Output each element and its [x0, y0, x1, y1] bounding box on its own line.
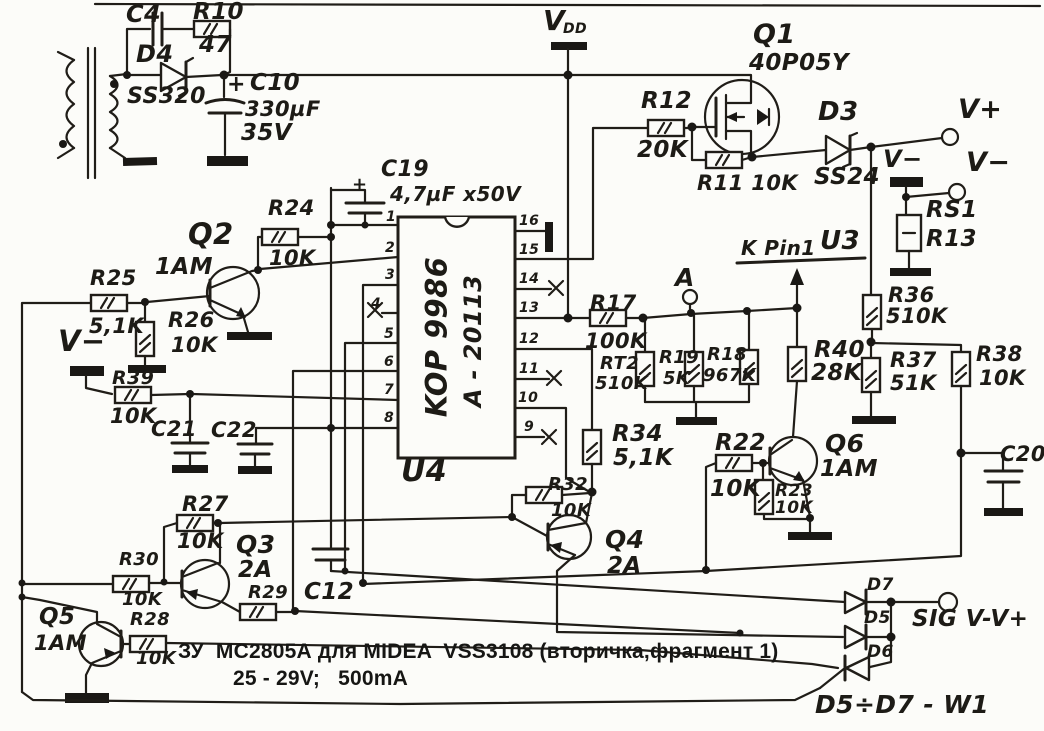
label-r19-value: 5K [663, 370, 690, 388]
pin-3: 3 [385, 268, 395, 282]
label-r27: R27 [182, 494, 229, 515]
label-r34-value: 5,1K [613, 447, 673, 470]
label-c4: C4 [126, 2, 161, 26]
label-r37-value: 51K [890, 373, 937, 394]
label-vminus-flag: V− [883, 147, 922, 171]
label-d4-part: SS320 [127, 86, 206, 108]
label-r22-value: 10K [710, 478, 761, 501]
label-r29: R29 [248, 584, 288, 602]
label-q3-part: 2A [238, 559, 273, 582]
label-d4: D4 [136, 42, 173, 66]
pin-13: 13 [519, 301, 539, 315]
label-c10-value: 330µF [245, 99, 321, 120]
label-vminus-left: V− [58, 327, 106, 356]
label-q4-part: 2A [607, 555, 642, 578]
ic-part: KOP 9986 [423, 257, 452, 418]
pin-11: 11 [519, 362, 539, 376]
label-r26: R26 [168, 310, 215, 331]
label-q2: Q2 [188, 220, 234, 249]
label-r38-value: 10K [979, 368, 1026, 389]
labels-layer: C4R1047D4SS320+C10330µF35VVDDQ140P05YR12… [0, 0, 1044, 731]
label-kpin1: K Pin1 [741, 238, 816, 258]
label-u4: U4 [401, 457, 447, 487]
pin-8: 8 [384, 411, 394, 425]
pin-2: 2 [385, 241, 395, 255]
caption-line1: ЗУ МС2805А для MIDEA VSS3108 (вторичка,ф… [178, 641, 778, 662]
label-q4: Q4 [605, 527, 644, 552]
label-q5-part: 1AM [34, 633, 87, 654]
label-c19-plus: + [352, 176, 367, 194]
label-r40: R40 [814, 339, 865, 362]
label-r34: R34 [612, 423, 663, 446]
label-u3: U3 [820, 228, 860, 254]
label-r36-value: 510K [886, 306, 948, 327]
pin-5: 5 [384, 327, 394, 341]
pin-14: 14 [519, 272, 539, 286]
pin-1: 1 [386, 210, 396, 224]
label-q6-part: 1AM [820, 458, 878, 481]
label-c22: C22 [211, 420, 257, 441]
label-c10-plus: + [227, 74, 246, 96]
label-r39-value: 10K [110, 406, 157, 427]
label-q6: Q6 [825, 431, 864, 456]
label-d6: D6 [867, 644, 894, 661]
label-d5d7-w1: D5÷D7 - W1 [815, 692, 989, 717]
label-r25: R25 [90, 268, 137, 289]
label-c10: C10 [250, 72, 300, 95]
label-q1-part: 40P05Y [749, 52, 849, 75]
label-r32-value: 10K [551, 502, 591, 520]
label-sig: SIG V-V+ [912, 608, 1028, 631]
label-q5: Q5 [39, 606, 75, 629]
label-r30: R30 [119, 551, 159, 569]
label-vdd-v: V [543, 7, 565, 35]
label-vplus: V+ [958, 96, 1002, 123]
label-r24: R24 [268, 198, 315, 219]
label-r27-value: 10K [177, 531, 224, 552]
label-r28-value: 10K [136, 650, 176, 668]
label-r11: R11 10K [697, 173, 798, 194]
label-d3-part: SS24 [814, 166, 880, 189]
label-vdd-sub: DD [563, 22, 587, 36]
label-vminus-terminal: V− [966, 149, 1010, 176]
label-c10-voltage: 35V [241, 122, 292, 145]
label-q2-part: 1AM [155, 256, 213, 279]
ic-code: A - 20113 [461, 275, 485, 407]
pin-7: 7 [384, 383, 394, 397]
pin-12: 12 [519, 332, 539, 346]
pin-9: 9 [524, 420, 534, 434]
label-r13: R13 [926, 228, 977, 251]
pin-10: 10 [518, 391, 538, 405]
label-r28: R28 [130, 611, 170, 629]
pin-6: 6 [384, 355, 394, 369]
schematic-scan: C4R1047D4SS320+C10330µF35VVDDQ140P05YR12… [0, 0, 1044, 731]
label-rt2-value: 510K [595, 375, 648, 393]
label-r17: R17 [590, 293, 637, 314]
caption-line2: 25 - 29V; 500mA [233, 668, 408, 689]
label-c21: C21 [151, 419, 197, 440]
label-r36: R36 [888, 285, 935, 306]
label-r23-value: 10K [775, 500, 813, 517]
label-r24-value: 10K [269, 248, 316, 269]
label-d7: D7 [867, 577, 894, 594]
label-c12: C12 [304, 581, 354, 604]
label-r12: R12 [641, 90, 692, 113]
label-r12-value: 20K [637, 139, 688, 162]
label-r17-value: 100K [585, 331, 647, 352]
label-r18: R18 [707, 346, 747, 364]
label-q3: Q3 [236, 532, 275, 557]
label-r19: R19 [659, 349, 699, 367]
label-d5: D5 [864, 610, 891, 627]
pin-15: 15 [519, 243, 539, 257]
label-r38: R38 [976, 344, 1023, 365]
label-r37: R37 [890, 350, 937, 371]
label-q1: Q1 [753, 21, 796, 48]
label-c19: C19 [381, 159, 429, 181]
label-r39: R39 [112, 369, 154, 388]
label-r10-value: 47 [199, 34, 232, 57]
label-r22: R22 [715, 432, 766, 455]
label-rs1: RS1 [926, 199, 977, 222]
label-rt2: RT2 [600, 355, 639, 373]
label-r10: R10 [193, 1, 244, 24]
label-r40-value: 28K [811, 362, 862, 385]
label-c20: C20 [1000, 444, 1044, 465]
label-r30-value: 10K [122, 591, 162, 609]
label-a-terminal: A [675, 265, 695, 290]
label-d3: D3 [818, 99, 858, 125]
pin-4: 4 [371, 297, 381, 311]
label-r32: R32 [548, 476, 588, 494]
label-r26-value: 10K [171, 335, 218, 356]
label-c19-value: 4,7µF x50V [390, 184, 521, 204]
pin-16: 16 [519, 214, 539, 228]
label-r18-value: 967K [703, 367, 756, 385]
